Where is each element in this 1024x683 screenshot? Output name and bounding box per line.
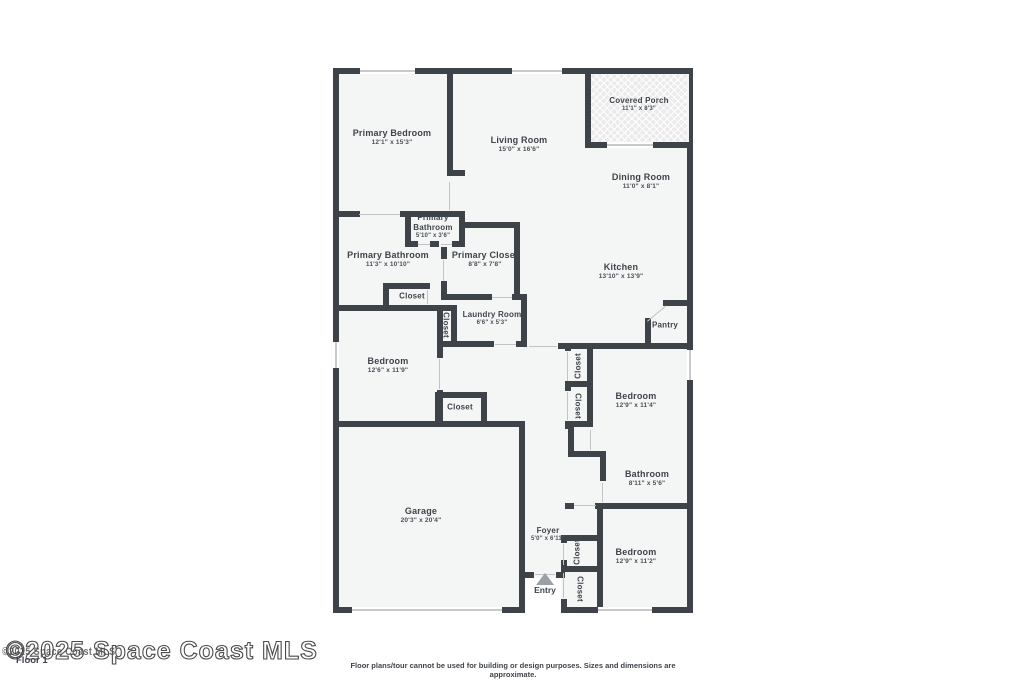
wall bbox=[481, 392, 487, 422]
wall bbox=[383, 283, 430, 289]
floor-plan-interior bbox=[336, 71, 690, 610]
wall bbox=[687, 147, 693, 613]
wall bbox=[519, 421, 525, 613]
wall bbox=[595, 503, 693, 509]
wall bbox=[516, 341, 527, 347]
door-opening bbox=[574, 505, 596, 506]
wall bbox=[430, 241, 439, 247]
wall bbox=[452, 241, 465, 247]
wall bbox=[565, 343, 571, 351]
door-opening bbox=[439, 359, 440, 389]
wall bbox=[521, 294, 527, 347]
wall bbox=[435, 392, 441, 422]
wall bbox=[514, 222, 520, 300]
wall bbox=[333, 68, 339, 613]
covered-porch-hatch bbox=[591, 74, 687, 142]
watermark: ©2025 Space Coast MLS bbox=[6, 637, 318, 666]
wall bbox=[405, 211, 465, 217]
wall bbox=[561, 566, 599, 572]
wall bbox=[405, 241, 418, 247]
wall bbox=[689, 68, 693, 150]
door-opening bbox=[529, 346, 557, 347]
wall bbox=[561, 535, 567, 543]
door-opening bbox=[563, 544, 564, 565]
wall bbox=[645, 318, 651, 345]
floor-plan-page: Primary Bedroom12'1" x 15'3"Living Room1… bbox=[0, 0, 1024, 683]
window-glass bbox=[689, 350, 691, 380]
wall bbox=[565, 503, 574, 509]
door-opening bbox=[441, 244, 452, 245]
window-glass bbox=[352, 609, 502, 611]
wall bbox=[600, 451, 606, 481]
window-glass bbox=[512, 70, 562, 72]
wall bbox=[525, 572, 534, 578]
wall bbox=[463, 222, 520, 228]
wall bbox=[383, 305, 430, 311]
door-opening bbox=[359, 214, 400, 215]
door-opening bbox=[567, 352, 568, 381]
wall bbox=[587, 343, 593, 427]
wall bbox=[441, 294, 492, 300]
door-opening bbox=[495, 344, 516, 345]
door-opening bbox=[590, 430, 591, 450]
wall bbox=[663, 300, 693, 306]
wall bbox=[447, 170, 465, 176]
wall bbox=[597, 509, 603, 607]
wall bbox=[333, 305, 383, 311]
window-glass bbox=[360, 70, 415, 72]
footer-disclaimer: Floor plans/tour cannot be used for buil… bbox=[333, 661, 693, 679]
entry-arrow-icon bbox=[536, 573, 554, 585]
wall bbox=[333, 211, 360, 217]
door-opening bbox=[449, 182, 450, 210]
wall bbox=[568, 451, 600, 457]
wall bbox=[558, 343, 693, 349]
window-glass bbox=[607, 144, 653, 146]
door-opening bbox=[567, 392, 568, 420]
wall bbox=[435, 392, 487, 398]
wall bbox=[333, 421, 525, 427]
wall bbox=[585, 68, 591, 148]
wall bbox=[561, 599, 567, 607]
wall bbox=[447, 68, 453, 176]
window-glass bbox=[598, 609, 652, 611]
floor-number-label: Floor 1 bbox=[16, 655, 48, 666]
wall bbox=[437, 341, 494, 347]
door-opening bbox=[602, 483, 603, 502]
door-opening bbox=[427, 290, 428, 304]
wall bbox=[441, 247, 447, 259]
door-opening bbox=[563, 573, 564, 598]
wall bbox=[437, 305, 443, 358]
entry-label: Entry bbox=[534, 585, 556, 595]
door-opening bbox=[418, 244, 430, 245]
window-glass bbox=[335, 342, 337, 368]
door-opening bbox=[443, 260, 444, 281]
door-opening bbox=[492, 297, 512, 298]
